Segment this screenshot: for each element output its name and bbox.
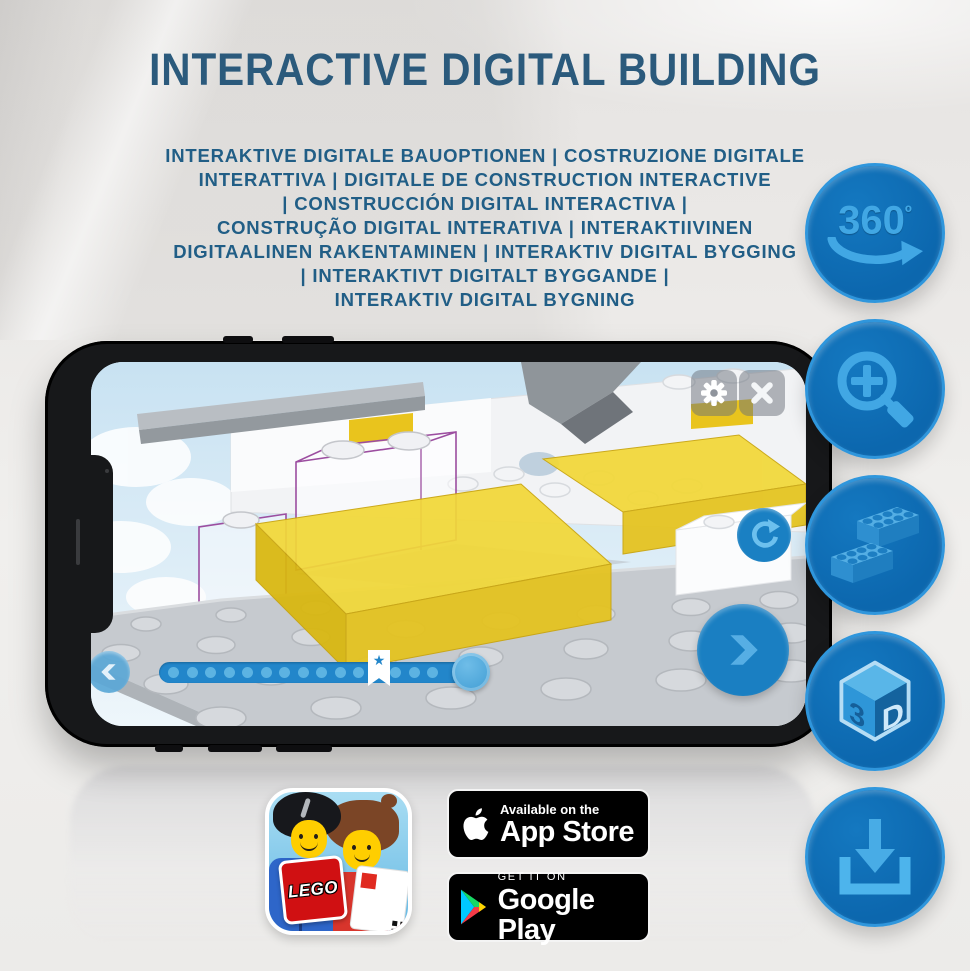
- phone-reflection: [70, 766, 815, 951]
- 360-rotation-icon: 360º: [838, 197, 912, 237]
- feature-zoom: [805, 319, 945, 459]
- app-store-badge[interactable]: Available on the App Store: [447, 789, 650, 859]
- progress-dot: [261, 667, 272, 678]
- close-button[interactable]: [739, 370, 785, 416]
- rotation-arrow-icon: [825, 237, 925, 269]
- camera-dot: [105, 469, 109, 473]
- feature-360-rotation: 360º: [805, 163, 945, 303]
- settings-button[interactable]: [691, 370, 737, 416]
- progress-dot: [298, 667, 309, 678]
- close-icon: [747, 378, 777, 408]
- apple-icon: [461, 807, 489, 842]
- app-store-name: App Store: [500, 817, 634, 847]
- zoom-in-icon: [833, 347, 917, 431]
- google-play-icon: [461, 887, 487, 927]
- qr-code: [392, 921, 398, 927]
- feature-bricks: [805, 475, 945, 615]
- back-arrow-icon: [98, 661, 120, 683]
- progress-dot: [187, 667, 198, 678]
- rotate-icon: [748, 519, 780, 551]
- progress-handle[interactable]: [452, 653, 490, 691]
- feature-3d-view: 3 D: [805, 631, 945, 771]
- next-step-button[interactable]: [697, 604, 789, 696]
- google-play-name: Google Play: [498, 885, 636, 945]
- progress-dot: [353, 667, 364, 678]
- progress-dot: [279, 667, 290, 678]
- progress-dot: [168, 667, 179, 678]
- lego-app-icon[interactable]: LEGO: [265, 788, 412, 935]
- next-arrow-icon: [722, 629, 764, 671]
- progress-dot: [316, 667, 327, 678]
- lego-app-promo-panel: INTERACTIVE DIGITAL BUILDING INTERAKTIVE…: [0, 0, 970, 971]
- brick-icon: [825, 495, 925, 595]
- progress-dot: [427, 667, 438, 678]
- progress-dot: [409, 667, 420, 678]
- boy-minifig-face: [291, 820, 327, 858]
- progress-dot: [242, 667, 253, 678]
- lego-logo: LEGO: [278, 855, 348, 925]
- phone-button: [155, 745, 183, 752]
- google-play-badge[interactable]: GET IT ON Google Play: [447, 872, 650, 942]
- feature-download: [805, 787, 945, 927]
- phone-button: [208, 745, 262, 752]
- girl-minifig-bun: [381, 794, 397, 808]
- phone-button: [223, 336, 253, 343]
- girl-minifig-face: [343, 830, 381, 870]
- progress-dot: [335, 667, 346, 678]
- phone-button: [282, 336, 334, 343]
- progress-dot: [390, 667, 401, 678]
- page-title: INTERACTIVE DIGITAL BUILDING: [49, 44, 922, 96]
- rotate-view-button[interactable]: [737, 508, 791, 562]
- progress-dot: [224, 667, 235, 678]
- progress-dot: [205, 667, 216, 678]
- download-icon: [829, 811, 921, 903]
- subtitle-line: INTERAKTIV DIGITAL BYGNING: [0, 288, 970, 312]
- google-play-tagline: GET IT ON: [498, 870, 636, 885]
- speaker-slit: [76, 519, 80, 565]
- smartphone: ★: [45, 341, 832, 747]
- build-progress-bar[interactable]: [159, 662, 489, 683]
- 3d-view-icon: 3 D: [827, 653, 923, 749]
- app-store-tagline: Available on the: [500, 802, 634, 817]
- gear-icon: [699, 378, 729, 408]
- phone-button: [276, 745, 332, 752]
- phone-notch: [91, 455, 113, 633]
- app-screen: ★: [91, 362, 806, 726]
- qr-card: [349, 865, 410, 935]
- subtitle-line: INTERAKTIVE DIGITALE BAUOPTIONEN | COSTR…: [0, 144, 970, 168]
